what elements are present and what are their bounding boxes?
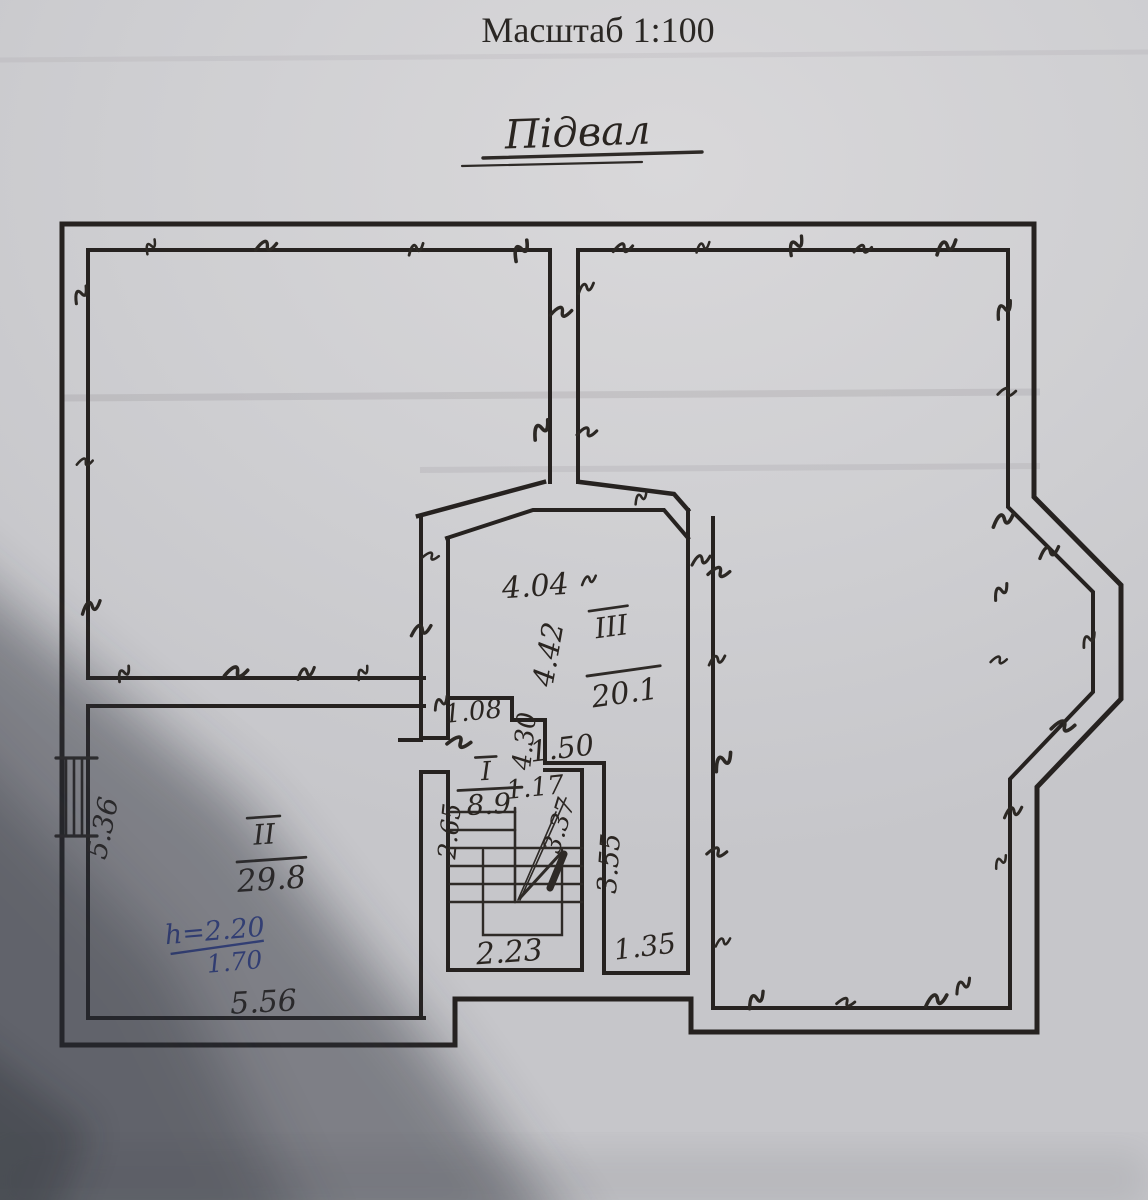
room-topleft-inner: [88, 250, 550, 678]
dim-stair-flight: 2.65: [432, 802, 467, 861]
check-mark: [692, 555, 710, 566]
room-right-inner: [578, 250, 1093, 1008]
dim-wall-355: 3.55: [592, 832, 627, 894]
floor-plan: Масштаб 1:100 Підвал 4.04 4.42 1.08 4.30…: [0, 0, 1148, 1200]
check-mark: [578, 283, 595, 294]
check-mark: [633, 492, 649, 505]
dim-room3-height: 4.42: [526, 620, 571, 690]
check-mark: [953, 978, 973, 994]
room-III-numeral: III: [592, 608, 631, 646]
check-mark: [81, 601, 102, 614]
check-mark: [581, 576, 596, 585]
check-mark: [707, 845, 727, 861]
room-II-label: II 29.8: [232, 814, 309, 900]
room-II-area: 29.8: [235, 859, 307, 900]
dim-vestibule-width: 1.08: [443, 694, 504, 730]
check-mark: [613, 242, 632, 256]
shadow-overlay: [0, 535, 1148, 1200]
dim-room2-bottom: 5.56: [229, 983, 298, 1021]
check-mark: [926, 995, 947, 1007]
check-mark: [991, 654, 1007, 667]
check-mark: [993, 514, 1015, 527]
check-mark: [447, 733, 471, 753]
room-III-area: 20.1: [588, 671, 660, 715]
check-mark: [993, 855, 1009, 868]
dim-room3-width: 4.04: [500, 567, 570, 607]
dim-stair-width: 2.23: [474, 933, 544, 973]
check-mark: [422, 550, 438, 563]
room-I-area: 8.9: [466, 787, 512, 822]
room-II-numeral: II: [251, 817, 277, 852]
check-mark: [143, 239, 159, 254]
stair-landing: [483, 850, 562, 935]
labels: Масштаб 1:100 Підвал 4.04 4.42 1.08 4.30…: [80, 10, 714, 1022]
scale-title: Масштаб 1:100: [481, 10, 714, 50]
central-wall-west-line: [400, 516, 448, 1018]
check-mark: [550, 305, 572, 321]
check-mark: [785, 236, 807, 256]
check-mark: [993, 301, 1015, 320]
check-mark: [1004, 807, 1022, 818]
blue-height-note: h=2.20 1.70: [164, 912, 269, 982]
wall-check-marks: [71, 236, 1098, 1010]
check-mark: [935, 240, 957, 255]
blue-note-line2: 1.70: [206, 945, 264, 979]
room-III-label: III 20.1: [578, 602, 666, 715]
check-mark: [712, 752, 736, 771]
room3-east-wall: [606, 510, 688, 973]
room-I-numeral: I: [479, 757, 493, 788]
check-mark: [77, 457, 93, 469]
check-mark: [854, 243, 872, 256]
arch-inner: [447, 510, 688, 538]
plan-title-group: Підвал: [462, 107, 702, 166]
check-mark: [991, 584, 1011, 601]
check-mark: [1080, 632, 1098, 647]
plan-title: Підвал: [503, 107, 651, 158]
check-mark: [407, 243, 424, 255]
scanned-floor-plan-page: Масштаб 1:100 Підвал 4.04 4.42 1.08 4.30…: [0, 0, 1148, 1200]
dim-nook-width: 1.35: [612, 926, 678, 966]
check-mark: [716, 938, 730, 946]
